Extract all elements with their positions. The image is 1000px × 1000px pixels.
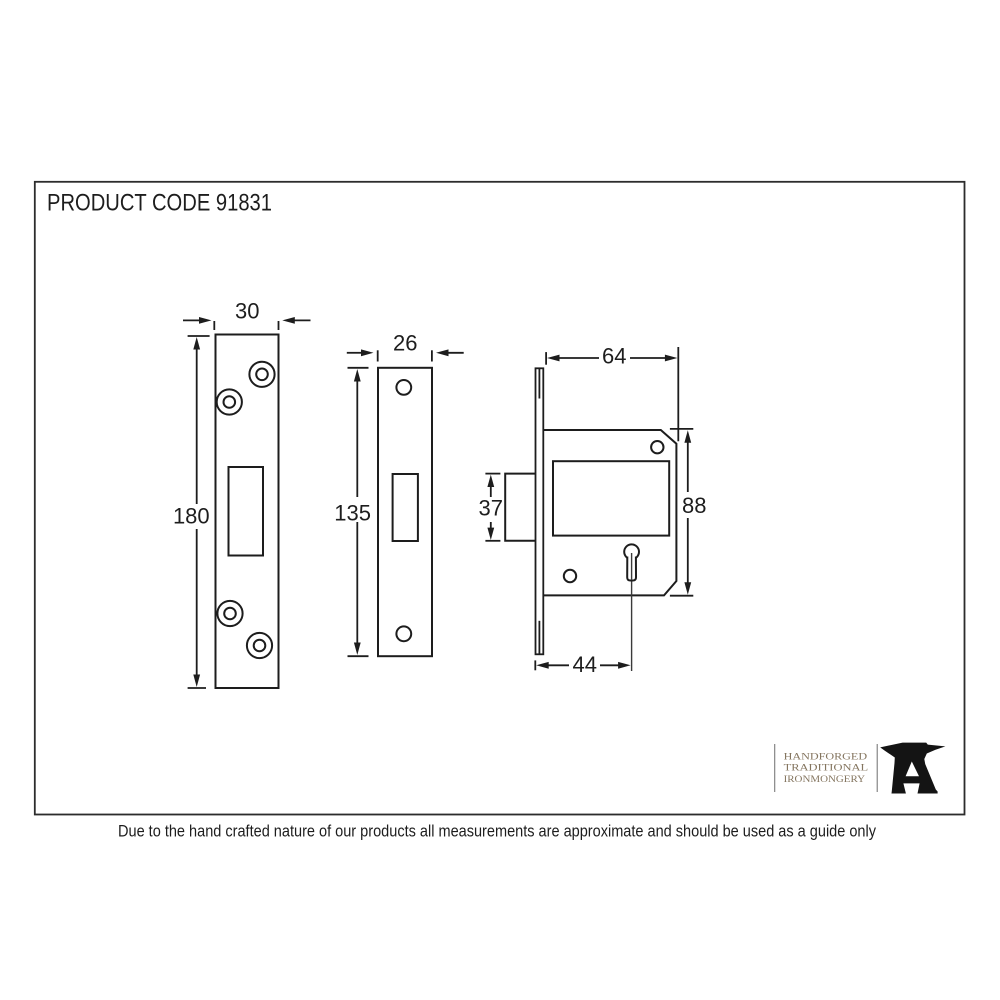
svg-text:88: 88 [682, 493, 706, 518]
svg-text:37: 37 [479, 496, 503, 521]
svg-text:PRODUCT CODE 91831: PRODUCT CODE 91831 [47, 190, 272, 217]
svg-text:64: 64 [602, 344, 626, 369]
svg-text:44: 44 [573, 652, 597, 677]
svg-text:IRONMONGERY: IRONMONGERY [784, 774, 866, 785]
svg-text:135: 135 [334, 501, 371, 526]
svg-text:26: 26 [393, 331, 417, 356]
svg-text:HANDFORGED: HANDFORGED [784, 751, 868, 762]
svg-text:Due to the hand crafted nature: Due to the hand crafted nature of our pr… [118, 823, 877, 841]
svg-text:180: 180 [173, 504, 210, 529]
svg-text:TRADITIONAL: TRADITIONAL [784, 763, 869, 774]
svg-text:30: 30 [235, 299, 259, 324]
